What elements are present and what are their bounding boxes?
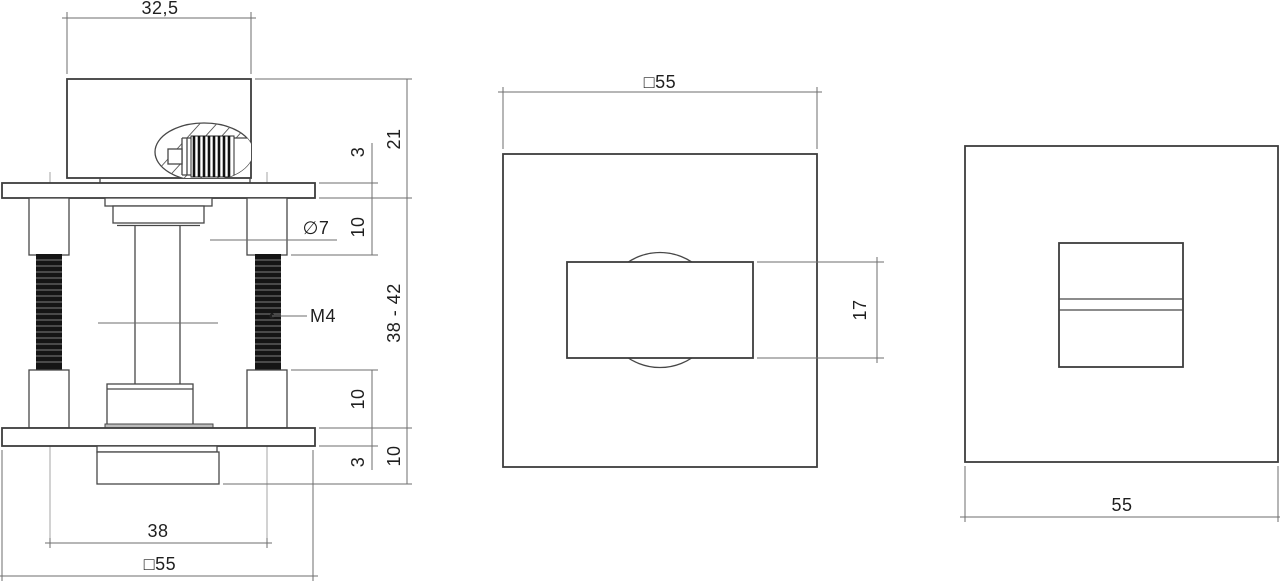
drawing-svg: 32,5: [0, 0, 1280, 583]
dim-label: 38 - 42: [384, 283, 404, 343]
turn-knob-front: [567, 262, 753, 358]
threaded-rod-right: [255, 254, 281, 370]
spindle-foot: [105, 384, 213, 429]
dim-label: □55: [144, 554, 176, 574]
dim-label: 10: [348, 388, 368, 409]
screw-socket: [168, 149, 182, 164]
threaded-rod-left: [36, 254, 62, 370]
rosette-plate-bottom: [2, 428, 315, 446]
dim-label: 32,5: [141, 0, 178, 18]
dim-label: 3: [348, 147, 368, 158]
dim-label: 38: [147, 521, 168, 541]
back-view-dimensions: 55: [960, 466, 1280, 522]
dim-label: M4: [310, 306, 336, 326]
front-view: □55 17: [498, 72, 884, 467]
set-screw-threads: [191, 136, 234, 177]
dim-label: 10: [384, 445, 404, 466]
dim-rosette-size-back: 55: [960, 466, 1280, 522]
dim-knob-width: 32,5: [62, 0, 256, 74]
dim-rosette-size-front: □55: [498, 72, 822, 149]
dim-label: □55: [644, 72, 676, 92]
dim-label: 10: [348, 216, 368, 237]
release-knob-back: [1059, 243, 1183, 367]
spindle-bearing: [105, 198, 212, 226]
dim-label: ∅7: [303, 218, 330, 238]
post-lower-right: [247, 370, 287, 428]
screw-centerlines: [50, 172, 267, 548]
dim-label: 21: [384, 128, 404, 149]
technical-drawing-canvas: 32,5: [0, 0, 1280, 583]
dim-chain-inner: 3 10 10 3: [348, 143, 377, 470]
release-knob-side: [97, 446, 219, 484]
dim-chain-outer: 21 38 - 42 10: [384, 79, 412, 484]
post-lower-left: [29, 370, 69, 428]
dim-screw-distance: 38: [45, 521, 272, 548]
dim-label: 55: [1111, 495, 1132, 515]
back-view: 55: [960, 146, 1280, 522]
post-upper-left: [29, 198, 69, 255]
spindle-shaft: [135, 225, 180, 384]
side-view: 32,5: [0, 0, 412, 581]
rosette-plate-top: [2, 183, 315, 198]
dim-label: 17: [850, 299, 870, 320]
dim-label: 3: [348, 457, 368, 468]
post-upper-right: [247, 198, 287, 255]
